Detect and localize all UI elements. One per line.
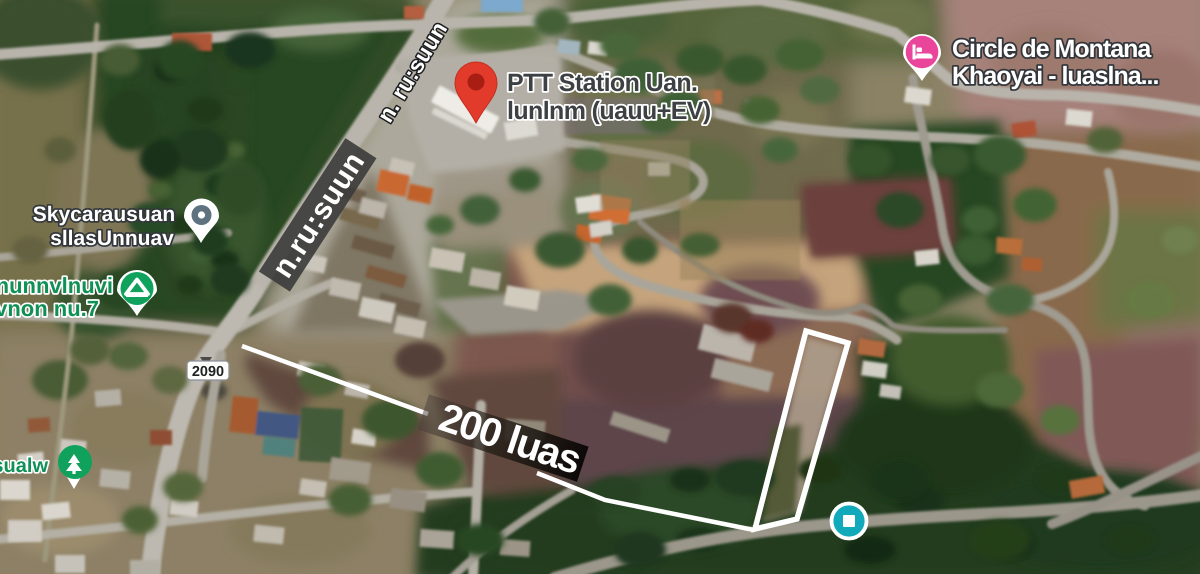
svg-text:Skycarausuan: Skycarausuan — [33, 203, 175, 226]
svg-text:Circle de Montana: Circle de Montana — [952, 35, 1152, 63]
svg-text:sllasUnnuav: sllasUnnuav — [50, 227, 174, 250]
svg-text:vnon nu.7: vnon nu.7 — [0, 296, 99, 321]
svg-text:2090: 2090 — [192, 364, 224, 380]
svg-text:nunnvlnuvi: nunnvlnuvi — [0, 273, 113, 298]
svg-text:sualw: sualw — [0, 455, 48, 477]
svg-text:n. ru:suun: n. ru:suun — [372, 17, 452, 127]
svg-text:lunlnm (uauu+EV): lunlnm (uauu+EV) — [507, 97, 711, 125]
svg-text:PTT Station Uan.: PTT Station Uan. — [507, 69, 697, 97]
svg-text:Khaoyai - luaslna...: Khaoyai - luaslna... — [952, 62, 1159, 90]
svg-text:n.ru:suun: n.ru:suun — [266, 146, 371, 284]
